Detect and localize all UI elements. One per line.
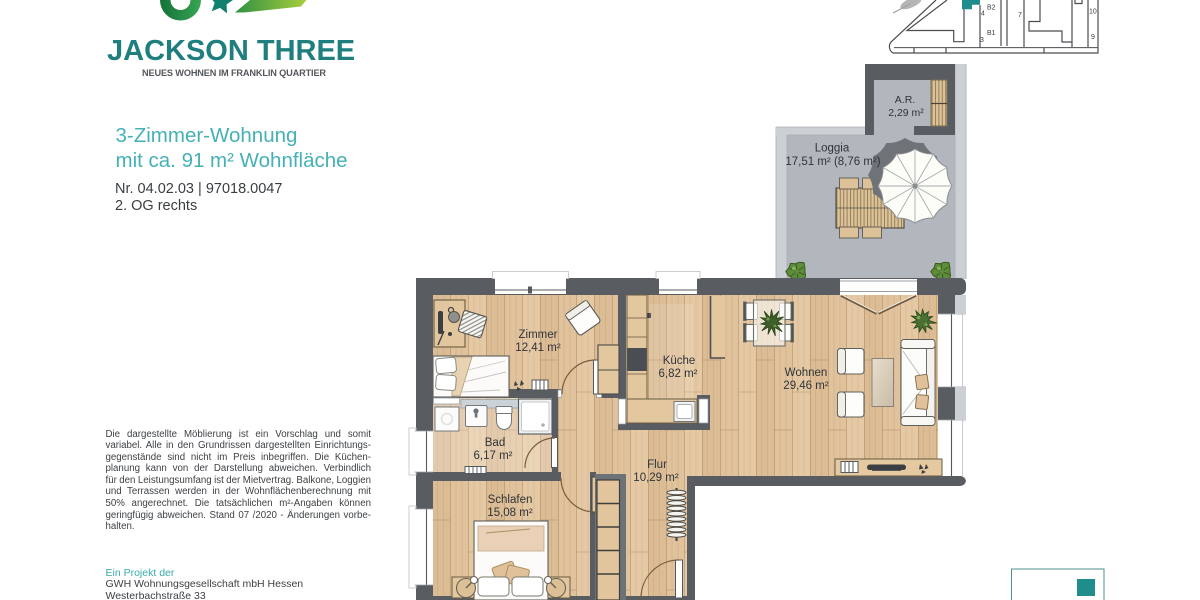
svg-text:Schlafen: Schlafen <box>488 494 533 506</box>
svg-text:7: 7 <box>1018 12 1022 19</box>
svg-text:17,51 m² (8,76 m²): 17,51 m² (8,76 m²) <box>785 156 880 168</box>
svg-text:15,08 m²: 15,08 m² <box>487 507 533 519</box>
svg-text:Wohnen: Wohnen <box>785 367 828 379</box>
svg-text:6,82 m²: 6,82 m² <box>659 368 698 380</box>
svg-text:Zimmer: Zimmer <box>519 329 558 341</box>
svg-text:9: 9 <box>1091 34 1095 41</box>
svg-text:29,46 m²: 29,46 m² <box>783 380 829 392</box>
svg-text:10: 10 <box>1089 9 1097 16</box>
svg-text:12,41 m²: 12,41 m² <box>515 342 561 354</box>
svg-text:A.R.: A.R. <box>895 94 915 106</box>
svg-text:4: 4 <box>981 11 985 18</box>
svg-text:3: 3 <box>980 37 984 44</box>
svg-text:Bad: Bad <box>485 437 505 449</box>
svg-text:Loggia: Loggia <box>815 143 850 155</box>
svg-text:Flur: Flur <box>647 459 667 471</box>
svg-text:Küche: Küche <box>663 355 696 367</box>
svg-text:2,29 m²: 2,29 m² <box>888 107 924 119</box>
svg-text:6,17 m²: 6,17 m² <box>474 450 513 462</box>
svg-text:B2: B2 <box>987 5 996 12</box>
svg-text:B1: B1 <box>987 30 996 37</box>
svg-text:10,29 m²: 10,29 m² <box>633 472 679 484</box>
